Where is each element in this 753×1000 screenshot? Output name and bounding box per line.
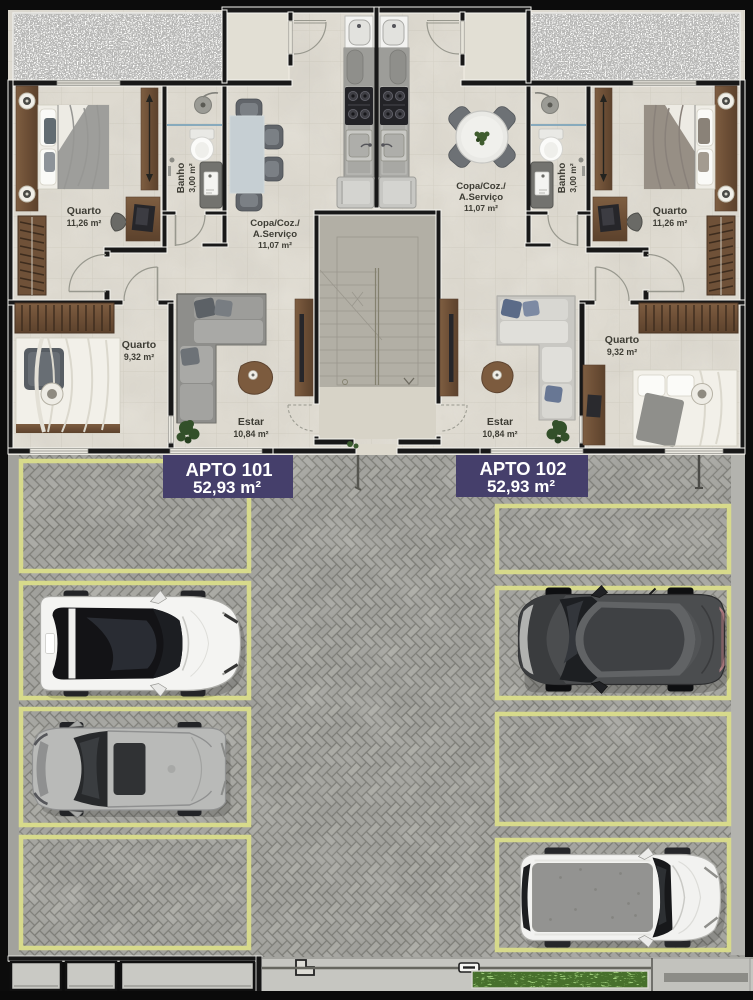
svg-text:Estar: Estar bbox=[238, 416, 264, 428]
svg-text:11,07 m²: 11,07 m² bbox=[464, 203, 498, 213]
svg-text:Copa/Coz./: Copa/Coz./ bbox=[456, 181, 506, 192]
svg-text:3,00 m²: 3,00 m² bbox=[187, 163, 197, 192]
svg-text:A.Serviço: A.Serviço bbox=[253, 229, 297, 240]
svg-text:52,93 m²: 52,93 m² bbox=[193, 478, 261, 497]
svg-text:10,84 m²: 10,84 m² bbox=[233, 429, 268, 439]
svg-text:11,07 m²: 11,07 m² bbox=[258, 240, 292, 250]
svg-text:Quarto: Quarto bbox=[67, 205, 101, 217]
svg-text:11,26 m²: 11,26 m² bbox=[67, 218, 102, 228]
svg-text:Banho: Banho bbox=[557, 163, 568, 193]
svg-text:Quarto: Quarto bbox=[122, 339, 156, 351]
svg-text:Quarto: Quarto bbox=[653, 205, 687, 217]
svg-text:APTO 102: APTO 102 bbox=[479, 458, 566, 479]
svg-text:11,26 m²: 11,26 m² bbox=[653, 218, 688, 228]
svg-text:Banho: Banho bbox=[176, 163, 187, 193]
svg-text:APTO 101: APTO 101 bbox=[185, 459, 272, 480]
svg-text:A.Serviço: A.Serviço bbox=[459, 192, 503, 203]
svg-text:10,84 m²: 10,84 m² bbox=[482, 429, 517, 439]
svg-text:9,32 m²: 9,32 m² bbox=[607, 347, 637, 357]
svg-text:Copa/Coz./: Copa/Coz./ bbox=[250, 218, 300, 229]
svg-text:52,93 m²: 52,93 m² bbox=[487, 477, 555, 496]
svg-text:Estar: Estar bbox=[487, 416, 513, 428]
svg-text:9,32 m²: 9,32 m² bbox=[124, 352, 154, 362]
svg-text:3,00 m²: 3,00 m² bbox=[568, 163, 578, 192]
svg-text:Quarto: Quarto bbox=[605, 334, 639, 346]
